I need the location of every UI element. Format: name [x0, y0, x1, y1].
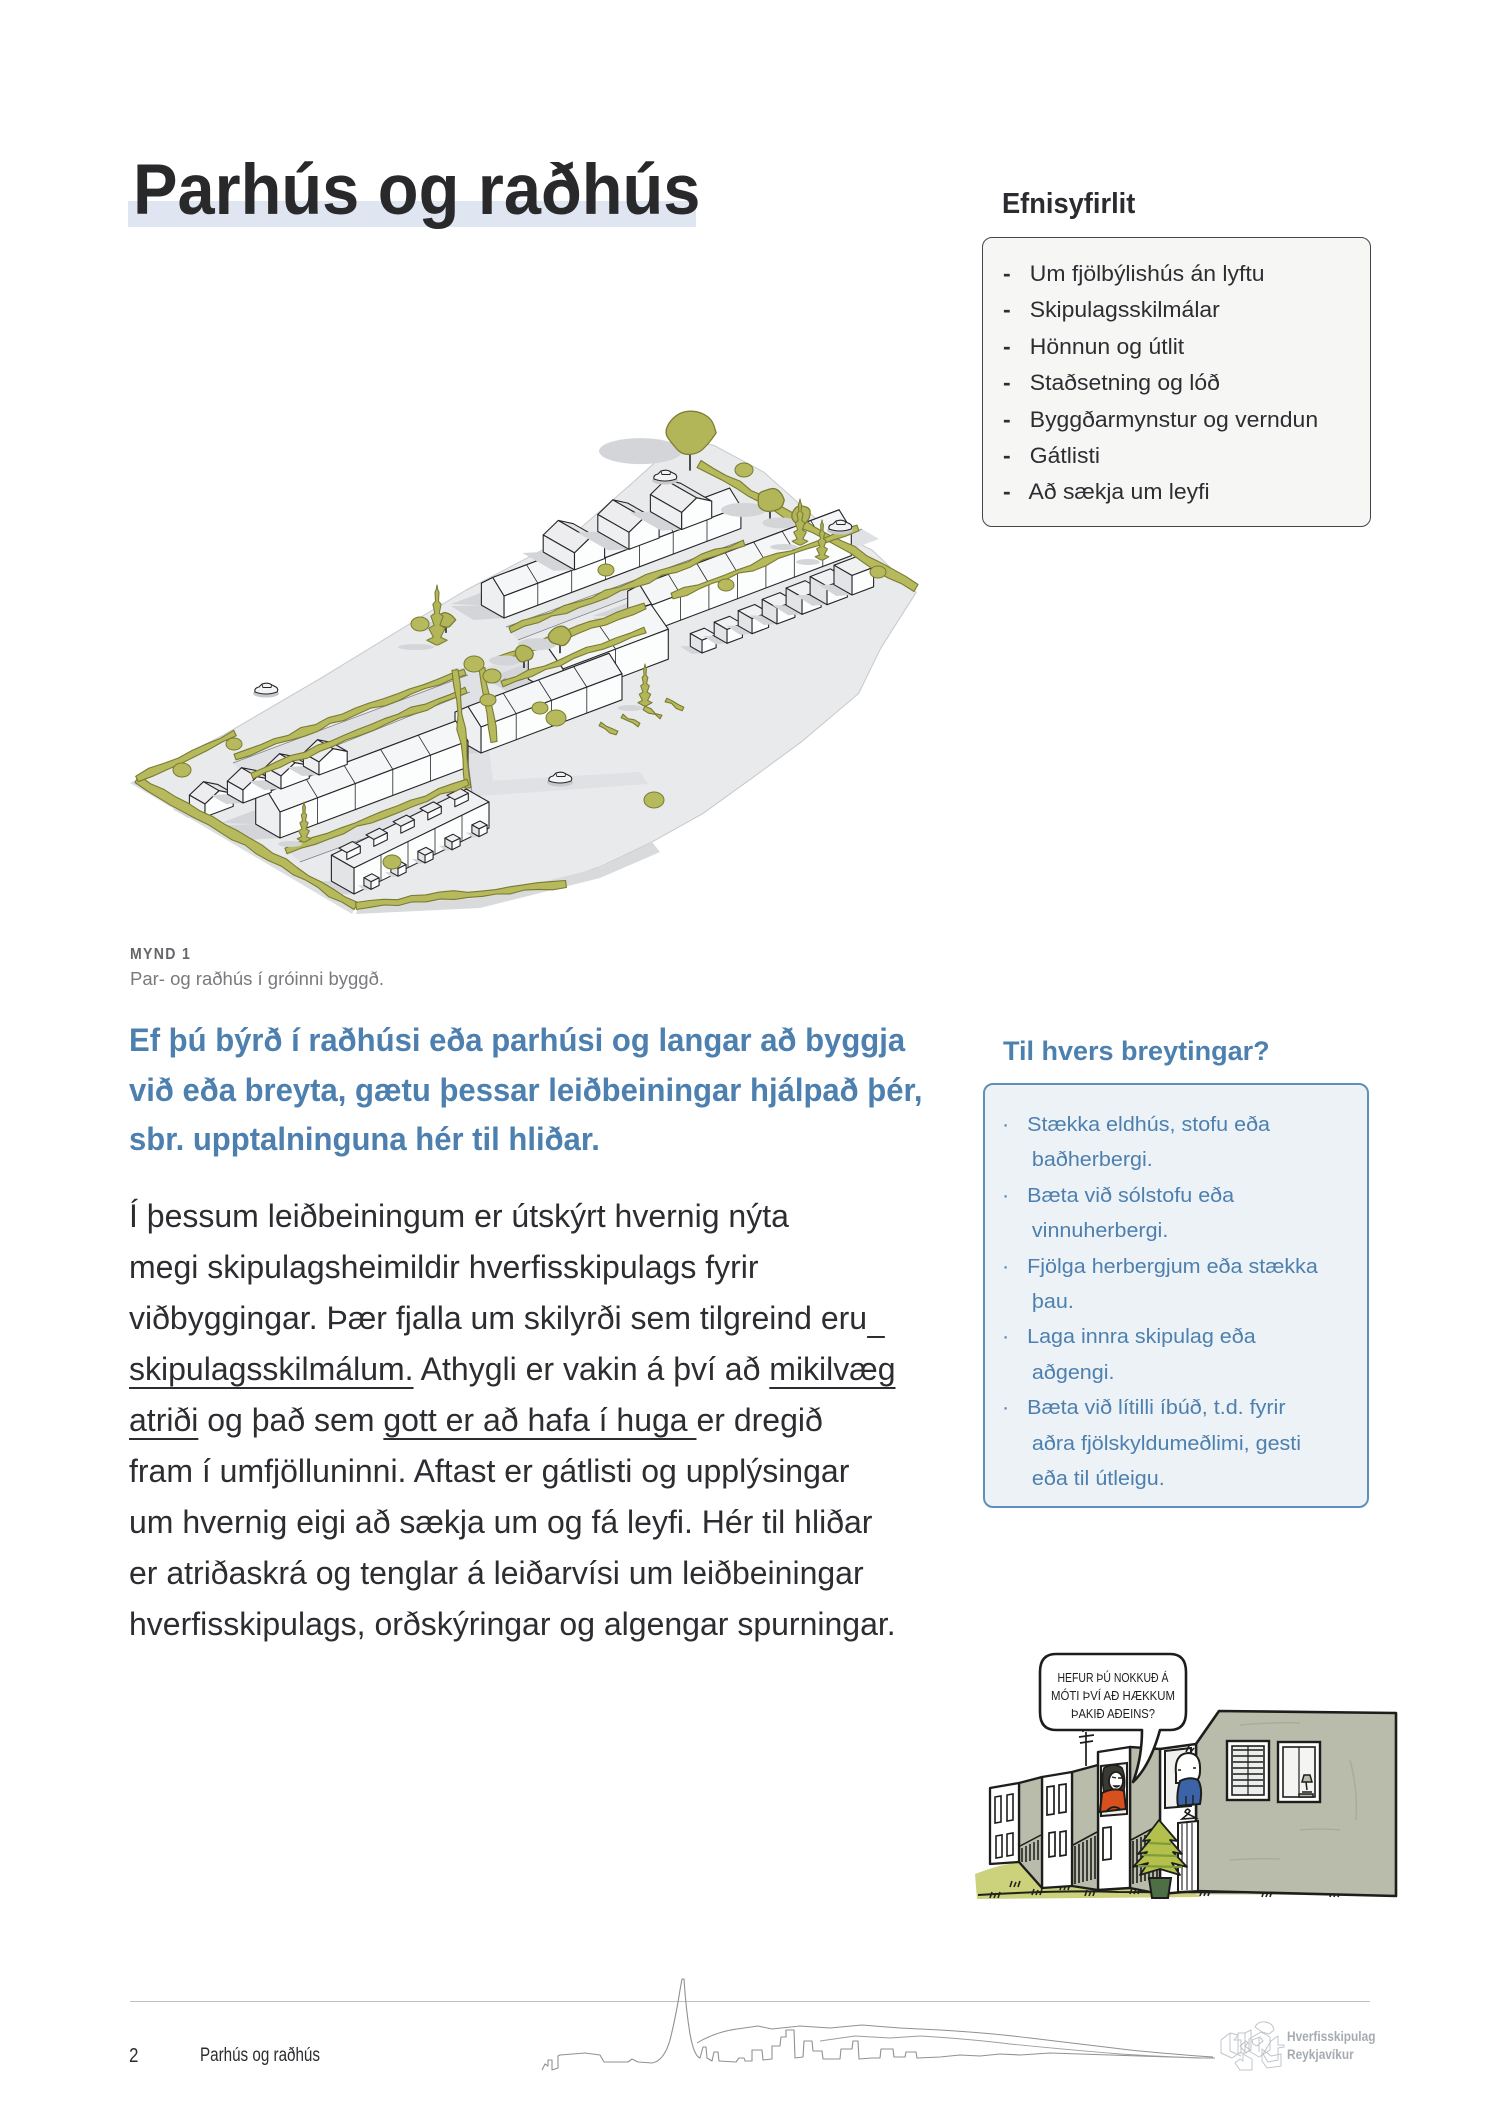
svg-text:HEFUR ÞÚ NOKKUÐ Á: HEFUR ÞÚ NOKKUÐ Á — [1058, 1670, 1170, 1685]
svg-text:MÓTI ÞVÍ AÐ HÆKKUM: MÓTI ÞVÍ AÐ HÆKKUM — [1051, 1688, 1175, 1703]
svg-text:ÞAKIÐ AÐEINS?: ÞAKIÐ AÐEINS? — [1071, 1707, 1155, 1721]
